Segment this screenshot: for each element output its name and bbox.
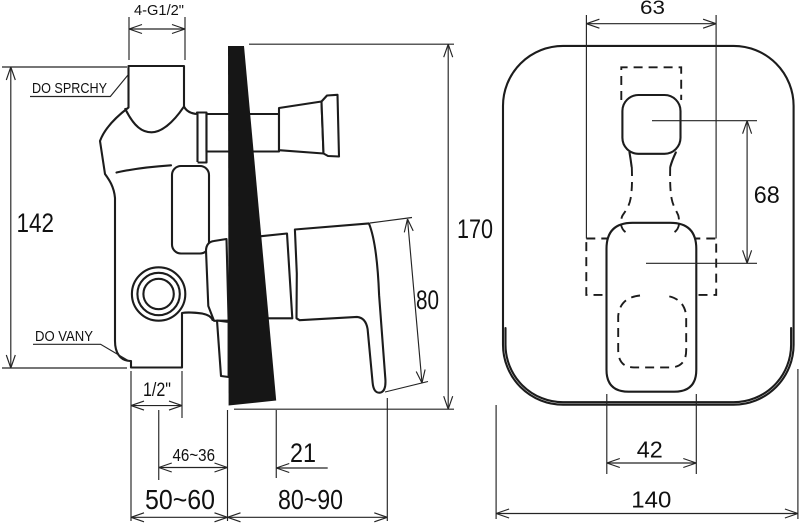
svg-text:1/2": 1/2" xyxy=(143,379,171,401)
svg-text:80: 80 xyxy=(416,285,439,315)
svg-text:170: 170 xyxy=(457,214,493,244)
svg-text:142: 142 xyxy=(17,208,55,238)
svg-text:140: 140 xyxy=(631,487,671,513)
svg-text:DO SPRCHY: DO SPRCHY xyxy=(32,80,107,97)
svg-text:21: 21 xyxy=(290,438,316,468)
svg-text:50~60: 50~60 xyxy=(145,484,215,515)
svg-text:42: 42 xyxy=(637,437,663,463)
svg-text:80~90: 80~90 xyxy=(278,484,343,515)
svg-text:46~36: 46~36 xyxy=(173,445,216,465)
svg-text:4-G1/2": 4-G1/2" xyxy=(134,3,184,19)
svg-text:63: 63 xyxy=(640,0,665,19)
svg-text:68: 68 xyxy=(754,182,780,209)
svg-text:DO VANY: DO VANY xyxy=(35,328,93,345)
